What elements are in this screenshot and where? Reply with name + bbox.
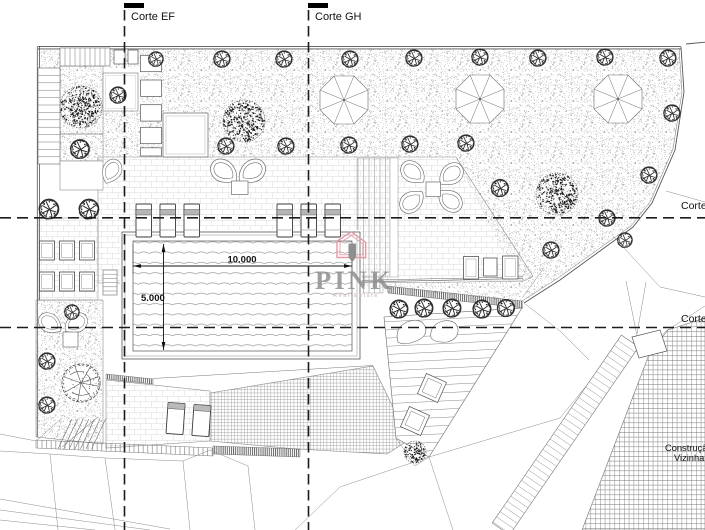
svg-text:Vizinhança: Vizinhança [674,453,705,463]
svg-text:Corte GH: Corte GH [315,11,362,23]
svg-text:Corte EF: Corte EF [131,11,175,23]
svg-text:PINK: PINK [315,265,394,295]
svg-text:Construção: Construção [665,443,705,453]
svg-text:5.000: 5.000 [141,293,165,304]
svg-text:10.000: 10.000 [227,255,256,266]
svg-text:Real Estate: Real Estate [333,293,379,299]
svg-text:Corte: Corte [681,200,705,212]
svg-text:Corte: Corte [681,313,705,325]
